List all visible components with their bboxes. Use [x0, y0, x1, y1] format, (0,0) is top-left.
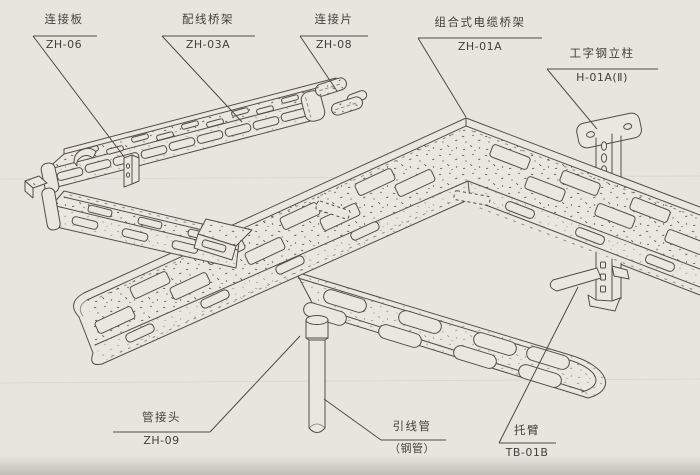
- label-pipe-joint: 管接头: [113, 412, 210, 424]
- code-connection-piece: ZH-08: [300, 39, 368, 50]
- code-connection-plate: ZH-06: [30, 39, 98, 50]
- pipe-joint-collar: [306, 316, 328, 341]
- code-steel-column: H-01A(Ⅱ): [546, 72, 658, 83]
- photo-shadow-edge: [0, 455, 700, 475]
- code-lead-pipe: （钢管）: [378, 443, 446, 454]
- code-cable-tray: ZH-01A: [416, 41, 544, 52]
- pipe-shaft: [309, 340, 325, 433]
- isometric-cable-tray-diagram: 连接板 ZH-06 配线桥架 ZH-03A 连接片 ZH-08 组合式电缆桥架 …: [0, 0, 700, 475]
- code-pipe-joint: ZH-09: [113, 435, 210, 446]
- label-connection-plate: 连接板: [30, 14, 98, 26]
- label-lead-pipe: 引线管: [378, 421, 446, 433]
- lead-pipe: [306, 316, 328, 433]
- label-wiring-tray: 配线桥架: [160, 14, 256, 26]
- label-support-arm: 托臂: [498, 425, 556, 437]
- label-connection-piece: 连接片: [300, 14, 368, 26]
- code-wiring-tray: ZH-03A: [160, 39, 256, 50]
- label-steel-column: 工字钢立柱: [546, 48, 658, 60]
- code-support-arm: TB-01B: [498, 447, 556, 458]
- label-cable-tray: 组合式电缆桥架: [416, 17, 544, 29]
- vertical-angle-bracket: [124, 155, 139, 187]
